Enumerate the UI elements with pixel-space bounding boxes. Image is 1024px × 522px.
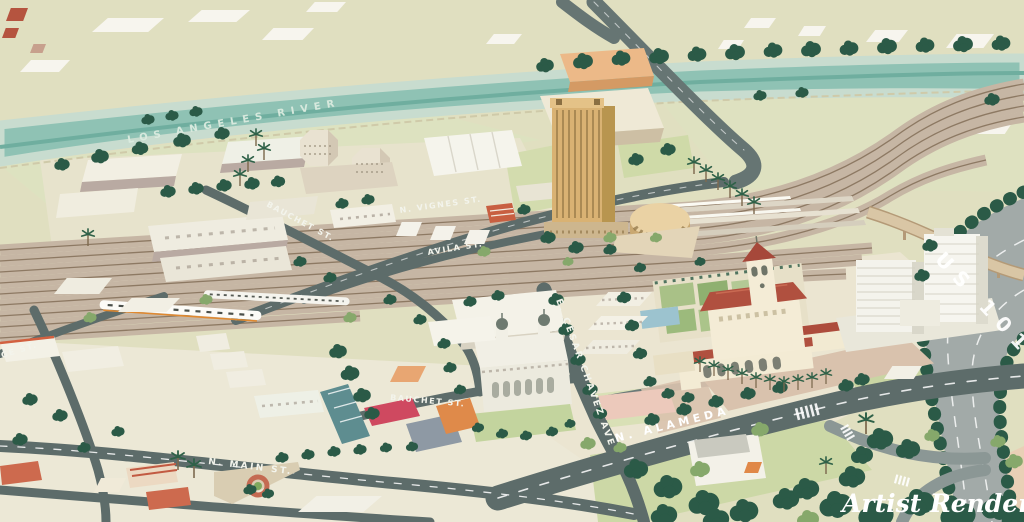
artist-rendering-credit: Artist Rendering: [840, 489, 1024, 518]
map-canvas: LOS ANGELES RIVER US 101 N. VIGNES ST. A…: [0, 0, 1024, 522]
artist-rendering-map: LOS ANGELES RIVER US 101 N. VIGNES ST. A…: [0, 0, 1024, 522]
